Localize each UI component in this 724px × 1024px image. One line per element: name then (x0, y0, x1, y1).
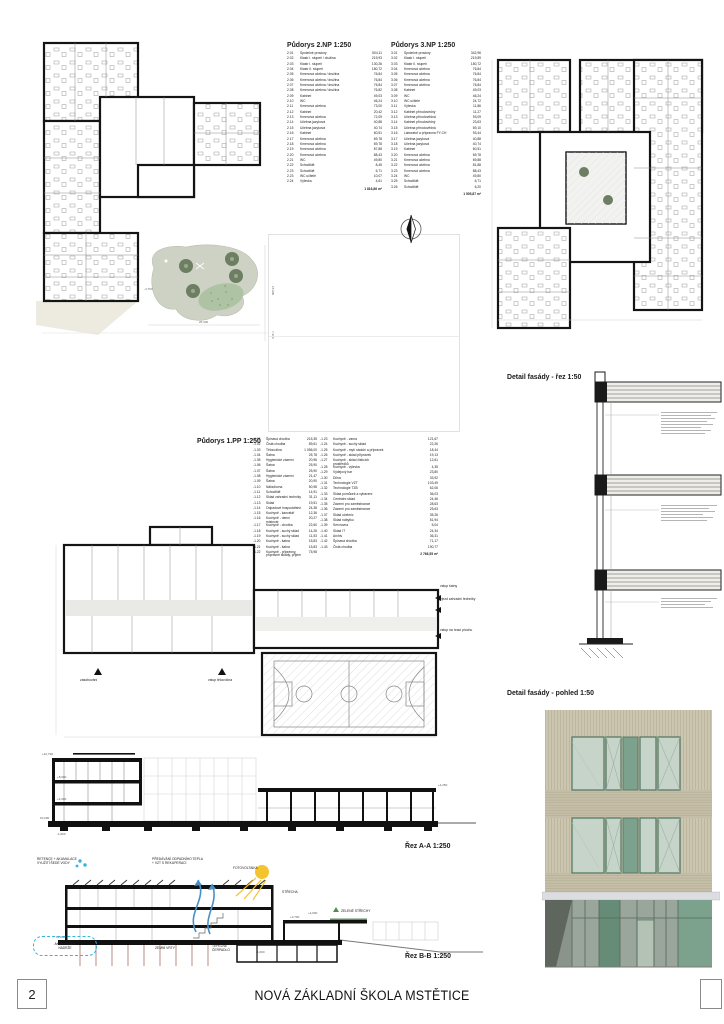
floor-plan-3np-drawing (488, 48, 718, 333)
annotation-odpadni-teplo: PŘEDÁVÁNÍ ODPADNÍHO TEPLA + VZT S REKUPE… (152, 857, 216, 865)
courtyard-lawn (152, 245, 258, 320)
room-number: 3.23 (391, 170, 404, 173)
annotation-strecha: STŘECHA (282, 890, 298, 894)
room-number: -1.10 (253, 486, 266, 489)
room-name: Dílna (333, 477, 385, 480)
room-name: WC učitelé (300, 175, 362, 178)
annotation-tepelne-cerpadlo: TEPELNÉ ČERPADLO (212, 944, 238, 952)
label-vjezd-zahradni-techniky: vjezd zahradní techniky (440, 598, 475, 602)
room-number: 2.07 (287, 84, 300, 87)
room-area: 20,42 (362, 111, 382, 114)
room-area: 50,98 (302, 486, 317, 489)
room-area: 40,88 (362, 121, 382, 124)
room-area: 33,92 (385, 477, 438, 480)
room-area: 11,27 (461, 111, 481, 114)
room-number: -1.08 (253, 475, 266, 478)
room-name: Kuchyně - sklad přípravek (333, 454, 385, 457)
section-a-left-block (52, 753, 142, 824)
room-name: Společné prostory (404, 52, 461, 55)
annotation-zelene-strechy: ZELENÉ STŘECHY (341, 909, 371, 913)
room-number: -1.11 (253, 491, 266, 494)
room-area: 23,80 (385, 471, 438, 474)
room-number: -1.31 (320, 482, 333, 485)
room-name: Čistá chodba (266, 443, 302, 446)
room-area: 4,61 (362, 180, 382, 183)
room-number: 2.03 (287, 63, 300, 66)
room-number: -1.33 (320, 493, 333, 496)
room-number: 2.14 (287, 121, 300, 124)
room-name: Společné prostory (300, 52, 362, 55)
legend-3np: Půdorys 3.NP 1:250 3.01Společné prostory… (391, 42, 481, 197)
room-name: Klastr II. stupeň (300, 68, 362, 71)
room-area: 60,51 (362, 132, 382, 135)
room-number: 2.06 (287, 79, 300, 82)
room-name: WC učitelé (404, 100, 461, 103)
section-b-basement (237, 945, 337, 962)
room-name: Kabinet přírodovědný (404, 111, 461, 114)
room-name: Kmenová učebna (404, 159, 461, 162)
room-number: 3.17 (391, 138, 404, 141)
room-area: 130,26 (362, 63, 382, 66)
room-name: Hygienické zázemí (266, 475, 302, 478)
room-number: 2.20 (287, 154, 300, 157)
room-area: 121,67 (385, 438, 438, 441)
room-name: Výdejový bar (333, 471, 385, 474)
room-name: Schodiště (404, 180, 461, 183)
room-area: 76,84 (461, 73, 481, 76)
room-name: Kabinet (300, 111, 362, 114)
window-row-lower (572, 818, 680, 873)
room-area: 76,84 (362, 79, 382, 82)
atrium-tree (579, 167, 589, 177)
room-number: -1.06 (253, 464, 266, 467)
room-area: 342,96 (461, 52, 481, 55)
room-name: Technologie TZB (333, 487, 385, 490)
room-number: -1.24 (320, 443, 333, 446)
room-number: 2.08 (287, 89, 300, 92)
room-number: -1.28 (320, 466, 333, 469)
section-a-mullions (64, 762, 124, 821)
section-a-drawing: +12,790 +8,000 +4,000 ±0,000 -1,000 +4,2… (40, 748, 480, 848)
annotation-zemni-vrty: ZEMNÍ VRTY (155, 946, 175, 950)
terrain-line (340, 940, 483, 952)
room-area: 22,26 (385, 443, 438, 446)
legend-1pp-title: Půdorys 1.PP 1:250 (197, 438, 261, 445)
svg-text:-4.750: -4.750 (144, 287, 153, 291)
room-area: 49,03 (362, 95, 382, 98)
room-number: 3.09 (391, 95, 404, 98)
room-name: Kmenová učebna (404, 68, 461, 71)
room-area: 62,06 (385, 487, 438, 490)
room-number: 3.01 (391, 52, 404, 55)
room-number: 2.05 (287, 73, 300, 76)
room-name: Kmenová učebna (404, 84, 461, 87)
room-area: 6,71 (461, 180, 481, 183)
room-area: 69,78 (362, 143, 382, 146)
room-name: Kuchyně - varna (333, 438, 385, 441)
svg-text:-1,000: -1,000 (57, 832, 66, 836)
context-building (144, 758, 256, 821)
label-vstup-satny: vstup šatny (440, 585, 457, 589)
sheet-title: NOVÁ ZÁKLADNÍ ŠKOLA MSTĚTICE (29, 988, 695, 1003)
room-area: 81,88 (461, 164, 481, 167)
room-number: -1.34 (320, 498, 333, 501)
room-area: 180,72 (362, 68, 382, 71)
room-name: Laboratoř a přípravna FY-CH (404, 132, 461, 135)
north-arrow-icon (396, 210, 426, 246)
room-name: Učebna jazyková (300, 127, 362, 130)
room-number: 3.25 (391, 180, 404, 183)
room-number: -1.02 (253, 443, 266, 446)
room-name: WC (404, 95, 461, 98)
room-area: 46,24 (362, 100, 382, 103)
room-name: Kmenová učebna (300, 138, 362, 141)
sun-icon (236, 865, 269, 900)
room-area: 12,61 (385, 459, 438, 462)
room-number: 2.10 (287, 100, 300, 103)
ground-detail (579, 638, 633, 658)
room-name: Šatna (266, 480, 302, 483)
section-a-ground (48, 821, 438, 831)
annotation-fotovoltaika: FOTOVOLTAIKA (233, 866, 258, 870)
room-number: -1.12 (253, 496, 266, 499)
svg-text:±0,000: ±0,000 (40, 816, 49, 820)
room-name: Kmenová učebna (404, 154, 461, 157)
room-name: Kabinet (404, 89, 461, 92)
room-name: Centrální sklad (333, 498, 385, 501)
facade-section-drawing (533, 370, 723, 665)
room-number: 3.16 (391, 132, 404, 135)
context-building-b (373, 922, 438, 940)
spandrel-band (545, 790, 712, 818)
floor-plan-2np-drawing: -4.750 26.300 18.900 7.300 (36, 33, 281, 343)
room-area: 18,44 (385, 449, 438, 452)
label-vstup-hraci-plocha: vstup na hrací plochu (440, 629, 472, 633)
room-name: Kabinet (404, 148, 461, 151)
room-number: 2.19 (287, 148, 300, 151)
room-area: 46,24 (461, 95, 481, 98)
room-area: 76,84 (362, 84, 382, 87)
room-name: Výlevka (300, 180, 362, 183)
section-b-label: Řez B-B 1:250 (405, 953, 451, 960)
room-area: 21,47 (302, 475, 317, 478)
legend-row: 2.24Výlevka4,61 (287, 180, 382, 185)
room-number: 2.16 (287, 132, 300, 135)
room-number: 3.11 (391, 105, 404, 108)
room-area: 24,46 (385, 498, 438, 501)
room-name: Kmenová učebna / družina (300, 89, 362, 92)
room-number: 2.12 (287, 111, 300, 114)
room-number: 2.09 (287, 95, 300, 98)
room-area: 10,07 (362, 175, 382, 178)
room-area: 504,11 (362, 52, 382, 55)
room-name: Kmenová učebna (404, 73, 461, 76)
green-roof-icon (333, 907, 339, 912)
svg-text:-1,000: -1,000 (256, 950, 265, 954)
room-name: Kmenová učebna (300, 143, 362, 146)
room-number: 2.17 (287, 138, 300, 141)
room-area: 76,84 (362, 73, 382, 76)
atrium-hatch (566, 152, 626, 224)
room-area: 40,74 (461, 143, 481, 146)
room-area: 25,90 (302, 464, 317, 467)
room-area: 215,35 (302, 438, 317, 441)
corridor-1pp (66, 600, 252, 616)
room-number: 3.10 (391, 100, 404, 103)
room-name: WC (404, 175, 461, 178)
annotation-akumulacni-nadrze: AKUMULAČNÍ NÁDRŽE (33, 936, 97, 956)
room-name: Kuchyně - suchý sklad (333, 443, 385, 446)
room-number: 3.02 (391, 57, 404, 60)
room-number: -1.05 (253, 459, 266, 462)
room-name: Učebna jazyková (404, 143, 461, 146)
room-number: 2.24 (287, 180, 300, 183)
room-name: Schodiště (300, 164, 362, 167)
room-area: 69,78 (362, 138, 382, 141)
room-area: 180,72 (461, 63, 481, 66)
room-number: 2.23 (287, 170, 300, 173)
room-area: 69,88 (461, 159, 481, 162)
room-area: 19,13 (385, 454, 438, 457)
room-name: Kmenová učebna / družina (300, 73, 362, 76)
room-number: 2.02 (287, 57, 300, 60)
room-area: 76,82 (362, 89, 382, 92)
room-name: Kuchyně - mytí nádobí a přípravek (333, 449, 385, 452)
room-number: 2.21 (287, 159, 300, 162)
legend-2np: Půdorys 2.NP 1:250 2.01Společné prostory… (287, 42, 382, 192)
room-area: 76,84 (461, 84, 481, 87)
room-area: 76,84 (461, 68, 481, 71)
room-name: Sklad pomůcek a vybavení (333, 493, 385, 496)
floor-plan-1pp-drawing (52, 505, 452, 740)
room-name: Kmenová učebna / družina (300, 79, 362, 82)
room-number: 3.26 (391, 186, 404, 189)
room-area: 88,43 (362, 154, 382, 157)
room-area: 4,35 (385, 466, 438, 469)
room-number: 3.04 (391, 68, 404, 71)
room-number: -1.01 (253, 438, 266, 441)
room-number: 3.13 (391, 116, 404, 119)
facade-elevation-title: Detail fasády - pohled 1:50 (507, 690, 594, 697)
room-number: 2.18 (287, 143, 300, 146)
room-name: Tělocvična (266, 449, 302, 452)
room-area: 8,45 (362, 164, 382, 167)
room-name: Kuchyně - výlevka (333, 466, 385, 469)
room-name: Kmenová učebna (300, 105, 362, 108)
room-area: 88,43 (461, 170, 481, 173)
room-area: 89,61 (302, 443, 317, 446)
room-area: 93,09 (461, 116, 481, 119)
annotation-retence: RETENCE + AKUMULACE VYUŽITÍ ŠEDÉ VODY (37, 857, 99, 865)
room-number: 3.21 (391, 159, 404, 162)
room-number: -1.25 (320, 449, 333, 452)
spandrel-band (545, 873, 712, 892)
legend-2np-total: 1 816,86 m² (287, 188, 382, 191)
room-number: 3.22 (391, 164, 404, 167)
room-area: 6,71 (362, 170, 382, 173)
room-name: Kmenová učebna (300, 148, 362, 151)
room-name: Šatna (266, 470, 302, 473)
room-name: Učebna přírodovědná (404, 127, 461, 130)
room-number: -1.32 (320, 487, 333, 490)
legend-3np-total: 1 505,87 m² (391, 193, 481, 196)
room-name: Sklad zahradní techniky (266, 496, 302, 499)
svg-text:+12,790: +12,790 (42, 752, 53, 756)
room-number: 3.20 (391, 154, 404, 157)
room-area: 11,86 (461, 105, 481, 108)
room-number: 2.23 (287, 175, 300, 178)
room-area: 40,88 (461, 138, 481, 141)
room-name: Kabinet (300, 132, 362, 135)
room-name: Nářaďovna (266, 486, 302, 489)
site-terrain-2np (36, 301, 138, 335)
sports-field-outline (268, 234, 460, 432)
room-area: 49,80 (461, 175, 481, 178)
room-name: Klastr I. stupeň (404, 57, 461, 60)
room-number: 2.15 (287, 127, 300, 130)
room-name: Klastr I. stupeň (300, 63, 362, 66)
room-area: 69,10 (461, 127, 481, 130)
room-area: 49,03 (461, 89, 481, 92)
room-name: WC (300, 159, 362, 162)
legend-2np-rows: 2.01Společné prostory504,112.02Klastr I.… (287, 52, 382, 186)
section-b-right-block (280, 919, 367, 946)
room-number: 3.05 (391, 73, 404, 76)
room-area: 219,93 (362, 57, 382, 60)
room-name: Špinavá chodba (266, 438, 302, 441)
sports-field-line (269, 336, 459, 337)
storefront (545, 900, 712, 967)
room-name: Technologie VZT (333, 482, 385, 485)
room-number: 2.11 (287, 105, 300, 108)
room-number: 3.14 (391, 121, 404, 124)
room-number: -1.04 (253, 454, 266, 457)
room-name: Učebna přírodovědná (404, 116, 461, 119)
room-area: 20,90 (302, 480, 317, 483)
room-name: Kabinet (300, 95, 362, 98)
window-row-upper (572, 737, 680, 790)
room-area: 14,91 (302, 491, 317, 494)
room-number: 3.03 (391, 63, 404, 66)
room-number: -1.09 (253, 480, 266, 483)
room-name: Kmenová učebna (300, 116, 362, 119)
room-area: 20,96 (302, 459, 317, 462)
room-area: 60,51 (461, 148, 481, 151)
room-number: 2.01 (287, 52, 300, 55)
room-number: 3.24 (391, 175, 404, 178)
legend-3np-rows: 3.01Společné prostory342,963.02Klastr I.… (391, 52, 481, 191)
room-number: 2.04 (287, 68, 300, 71)
room-name: Učebna jazyková (404, 138, 461, 141)
room-area: 6,20 (461, 186, 481, 189)
svg-text:+3,700: +3,700 (290, 915, 300, 919)
room-area: 49,80 (362, 159, 382, 162)
room-name: Kmenová učebna (404, 79, 461, 82)
facade-wall-lines (597, 402, 603, 640)
room-area: 76,84 (461, 79, 481, 82)
room-area: 25,78 (302, 454, 317, 457)
room-number: 3.12 (391, 111, 404, 114)
room-name: Kmenová učebna (404, 164, 461, 167)
room-area: 93,44 (461, 132, 481, 135)
room-name: Schodiště (404, 186, 461, 189)
room-number: -1.30 (320, 477, 333, 480)
section-a-label: Řez A-A 1:250 (405, 843, 450, 850)
room-name: Kmenová učebna / družina (300, 84, 362, 87)
label-vstup-telocvicna: vstup tělocvična (208, 679, 232, 683)
section-a-right-wing (258, 788, 436, 821)
corridor-1pp-east (256, 617, 436, 631)
room-area: 25,90 (302, 470, 317, 473)
room-name: Učebna jazyková (300, 121, 362, 124)
canopy-band (542, 892, 720, 900)
room-number: -1.29 (320, 471, 333, 474)
room-name: Klastr II. stupeň (404, 63, 461, 66)
room-name: Schodiště (300, 170, 362, 173)
room-area: 31,11 (302, 496, 317, 499)
room-name: Kmenová učebna (300, 154, 362, 157)
svg-text:26.300: 26.300 (199, 320, 209, 324)
sheet-corner-box (700, 979, 722, 1009)
room-number: 3.07 (391, 84, 404, 87)
room-name: Schodiště (266, 491, 302, 494)
room-name: Klastr I. stupeň / družina (300, 57, 362, 60)
room-name: Kmenová učebna (404, 170, 461, 173)
room-area: 40,74 (362, 127, 382, 130)
label-zasobovani: zásobování (80, 679, 97, 683)
atrium-tree (603, 195, 613, 205)
room-number: 3.06 (391, 79, 404, 82)
borehole-lines (80, 945, 208, 966)
room-area: 87,88 (362, 148, 382, 151)
solar-panels (73, 880, 265, 885)
room-number: 3.19 (391, 148, 404, 151)
room-name: Šatna (266, 464, 302, 467)
room-area: 23,63 (461, 121, 481, 124)
room-area: 73,00 (362, 105, 382, 108)
room-number: 2.13 (287, 116, 300, 119)
floor-slabs (595, 382, 721, 590)
room-area: 36,03 (385, 493, 438, 496)
room-area: 24,72 (461, 100, 481, 103)
legend-row: 3.26Schodiště6,20 (391, 186, 481, 191)
room-name: Kabinet přírodovědný (404, 121, 461, 124)
svg-text:+4,250: +4,250 (438, 783, 448, 787)
room-number: 3.08 (391, 89, 404, 92)
svg-text:+4,000: +4,000 (57, 797, 67, 801)
room-name: Výlevka (404, 105, 461, 108)
room-name: WC (300, 100, 362, 103)
room-number: 2.22 (287, 164, 300, 167)
room-number: -1.23 (320, 438, 333, 441)
room-area: 1 056,00 (302, 449, 317, 452)
room-number: 3.15 (391, 127, 404, 130)
svg-text:+4,000: +4,000 (308, 911, 318, 915)
competition-board-sheet: -4.750 26.300 18.900 7.300 Půdorys 2.NP … (0, 0, 724, 1024)
room-number: -1.27 (320, 459, 333, 462)
room-name: Šatna (266, 454, 302, 457)
room-number: -1.03 (253, 449, 266, 452)
room-number: -1.26 (320, 454, 333, 457)
room-area: 219,89 (461, 57, 481, 60)
room-area: 69,78 (461, 154, 481, 157)
room-number: -1.07 (253, 470, 266, 473)
room-number: 3.18 (391, 143, 404, 146)
room-area: 103,49 (385, 482, 438, 485)
room-area: 72,09 (362, 116, 382, 119)
facade-elevation-drawing (542, 706, 720, 976)
svg-text:+8,000: +8,000 (57, 775, 67, 779)
